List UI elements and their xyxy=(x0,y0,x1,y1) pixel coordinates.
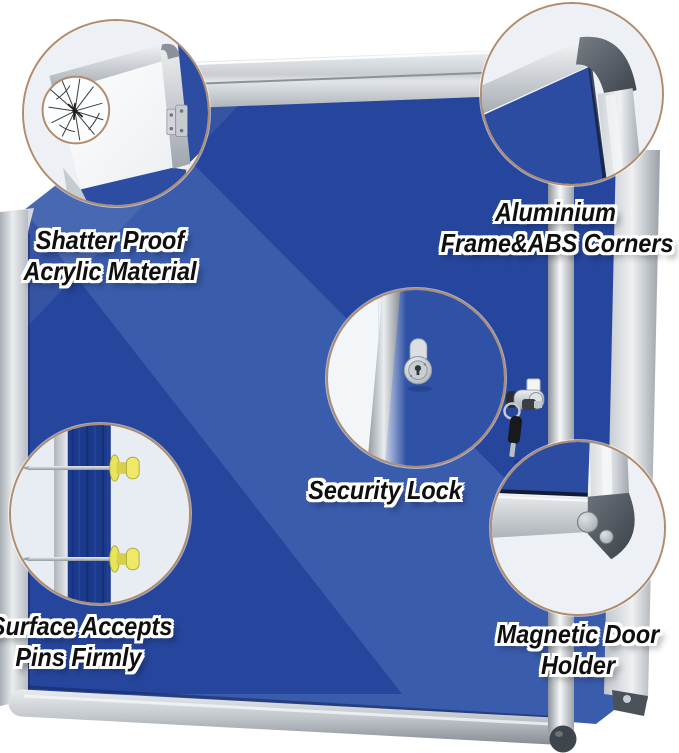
callout-shatter-proof-acrylic xyxy=(22,19,210,207)
push-pin-scene xyxy=(11,425,189,603)
feature-label-line: Security Lock xyxy=(300,475,471,506)
shatter-crack-icon xyxy=(43,77,110,144)
cracked-acrylic-door-scene xyxy=(24,21,208,205)
feature-label-shatter-proof: Shatter Proof Acrylic Material xyxy=(2,225,218,287)
magnetic-holder-scene xyxy=(492,442,664,614)
feature-label-pin-surface: Surface Accepts Pins Firmly xyxy=(0,611,167,673)
feature-label-line: Magnetic Door xyxy=(490,619,666,650)
callout-pin-surface xyxy=(9,423,191,605)
feature-label-magnetic-door-holder: Magnetic Door Holder xyxy=(490,619,666,681)
felt-cross-section xyxy=(68,425,111,603)
door-hinge xyxy=(167,105,188,136)
frame-corner-scene xyxy=(482,4,662,184)
abs-tube-end-cap xyxy=(550,726,577,753)
security-lock-scene xyxy=(328,290,504,466)
feature-label-line: Acrylic Material xyxy=(2,256,218,287)
feature-label-line: Shatter Proof xyxy=(2,225,218,256)
feature-label-line: Frame&ABS Corners xyxy=(441,228,671,259)
callout-aluminium-frame-corner xyxy=(480,2,664,186)
magnetic-holder-button xyxy=(600,530,614,544)
feature-label-aluminium-frame: Aluminium Frame&ABS Corners xyxy=(441,197,671,259)
feature-label-line: Aluminium xyxy=(441,197,671,228)
callout-security-lock xyxy=(326,288,506,468)
feature-label-line: Surface Accepts xyxy=(0,611,167,642)
feature-label-security-lock: Security Lock xyxy=(300,475,471,506)
feature-label-line: Holder xyxy=(490,650,666,681)
feature-label-line: Pins Firmly xyxy=(0,642,167,673)
callout-magnetic-door-holder xyxy=(490,440,666,616)
magnetic-holder-button xyxy=(578,512,599,533)
product-feature-image: Shatter Proof Acrylic Material Aluminium… xyxy=(0,0,679,753)
